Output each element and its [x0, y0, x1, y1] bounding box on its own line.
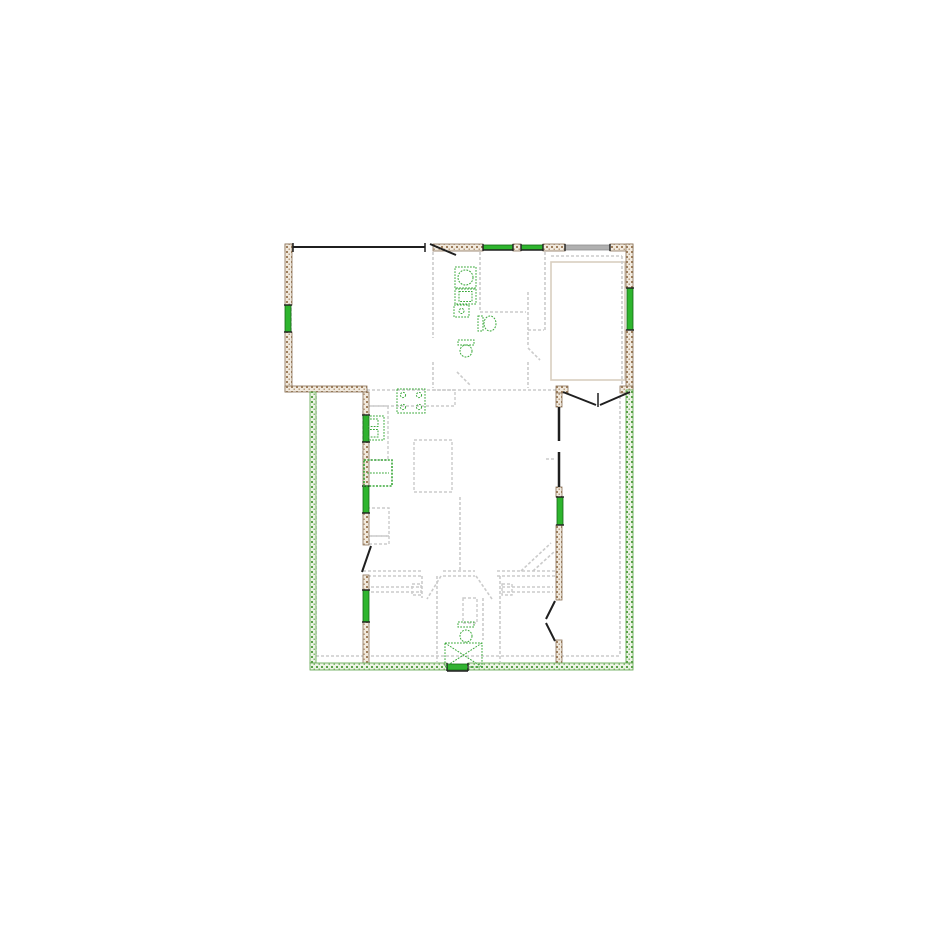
- french-door-leaf-left: [563, 392, 596, 405]
- cabinet-b: [369, 536, 389, 544]
- laundry-sink-body: [454, 305, 469, 317]
- window-right-mid-glass: [557, 497, 563, 525]
- window-left-garage-glass: [285, 305, 291, 332]
- wall-right-lower: [626, 390, 633, 663]
- window-bedroom-left-glass: [363, 590, 369, 622]
- floor-plan-canvas: [0, 0, 925, 925]
- window-bedroom-left: [362, 590, 370, 622]
- window-top-gray: [565, 244, 610, 251]
- toilet-hall-bowl: [484, 316, 496, 331]
- wall-right-upper-b: [626, 330, 633, 390]
- wall-inner-right-b: [556, 487, 562, 497]
- wall-left-lower: [310, 392, 316, 663]
- window-top-1-glass: [483, 245, 513, 250]
- kitchen-counter-top: [367, 390, 455, 406]
- toilet-mid-bowl: [460, 345, 472, 357]
- cabinet-a: [367, 508, 389, 536]
- door-leaf-bed1: [427, 576, 441, 599]
- wall-top-between-windows: [513, 244, 521, 251]
- toilet-bath: [458, 622, 474, 642]
- toilet-mid: [458, 340, 474, 357]
- wall-inner-right-a: [556, 393, 562, 407]
- washer: [455, 267, 476, 288]
- wall-inner-right-c: [556, 525, 562, 600]
- kitchen-range-burner-0: [400, 392, 405, 397]
- wall-inner-left-d: [363, 575, 369, 590]
- roof-diag-1: [521, 543, 551, 571]
- double-door-leaf-top: [546, 601, 555, 619]
- wall-bottom-b: [468, 663, 633, 670]
- closet-box-right: [502, 584, 512, 595]
- garage-slab: [551, 262, 625, 380]
- dryer-door: [459, 292, 472, 302]
- toilet-hall-tank: [478, 316, 483, 331]
- door-leaf-bed2: [476, 576, 492, 599]
- toilet-bath-bowl: [460, 630, 472, 642]
- window-kitchen-2-glass: [363, 486, 369, 513]
- window-kitchen-2: [362, 486, 370, 513]
- french-door-leaf-right: [600, 392, 630, 405]
- wall-inner-left-e: [363, 622, 369, 668]
- toilet-hall: [478, 316, 496, 331]
- dryer: [455, 289, 476, 304]
- window-top-2-glass: [521, 245, 543, 250]
- window-right-mid: [556, 497, 564, 525]
- wall-inner-left-c: [363, 513, 369, 545]
- wall-left-upper-b: [285, 332, 292, 392]
- wall-right-upper-a: [626, 244, 633, 288]
- kitchen-range: [397, 389, 425, 413]
- window-left-garage: [284, 305, 292, 332]
- wall-inner-left-a: [363, 392, 369, 415]
- wall-top-right-a: [543, 244, 565, 251]
- wall-garage-south: [285, 386, 367, 392]
- door-leaf-hall: [528, 348, 540, 360]
- kitchen-range-burner-2: [400, 404, 405, 409]
- kitchen-door-leaf: [362, 546, 371, 572]
- toilet-mid-tank: [458, 340, 474, 345]
- washer-drum: [458, 270, 473, 285]
- window-right-upper-glass: [627, 288, 633, 330]
- window-top-gray-glass: [565, 245, 610, 250]
- laundry-sink: [454, 305, 469, 317]
- kitchen-range-burner-1: [416, 392, 421, 397]
- wall-left-upper-a: [285, 244, 292, 305]
- shower: [445, 643, 482, 667]
- floor-plan-screenshot: [0, 0, 925, 925]
- wall-bottom-a: [310, 663, 447, 670]
- door-leaf-laundry: [457, 372, 471, 386]
- window-right-upper: [626, 288, 634, 330]
- roof-diag-2: [533, 551, 555, 571]
- wall-frenchdoor-stub-left: [556, 386, 568, 393]
- laundry-sink-bowl: [459, 309, 464, 314]
- closet-box-left: [412, 584, 421, 595]
- kitchen-range-burner-3: [416, 404, 421, 409]
- bath-vanity: [463, 598, 477, 623]
- kitchen-island: [414, 440, 452, 492]
- double-door-leaf-bottom: [546, 623, 555, 641]
